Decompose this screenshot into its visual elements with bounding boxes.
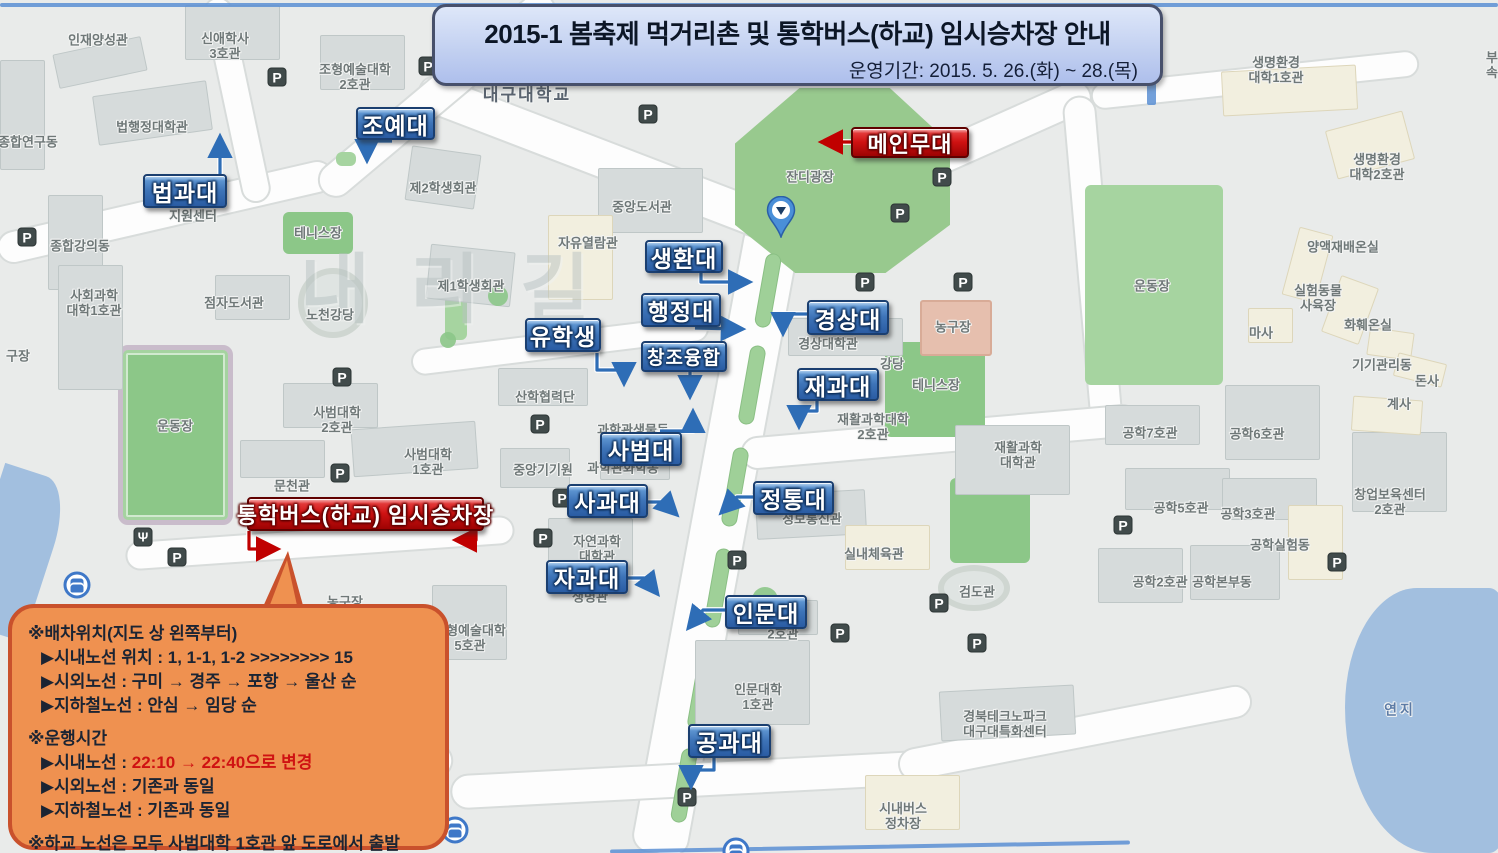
poster-title: 2015-1 봄축제 먹거리촌 및 통학버스(하교) 임시승차장 안내 — [451, 14, 1144, 51]
notice-line-highlight: 22:10 → 22:40으로 변경 — [132, 753, 313, 772]
notice-bubble: ※배차위치(지도 상 왼쪽부터)▶시내노선 위치 : 1, 1-1, 1-2 >… — [8, 604, 449, 850]
notice-line-prefix: ▶시내노선 : — [41, 753, 132, 772]
title-banner: 2015-1 봄축제 먹거리촌 및 통학버스(하교) 임시승차장 안내 운영기간… — [432, 4, 1163, 86]
notice-section: ※배차위치(지도 상 왼쪽부터)▶시내노선 위치 : 1, 1-1, 1-2 >… — [28, 622, 435, 718]
notice-line: ▶시내노선 위치 : 1, 1-1, 1-2 >>>>>>>> 15 — [28, 646, 435, 670]
notice-section-header: ※하교 노선은 모두 사범대학 1호관 앞 도로에서 출발 — [28, 832, 435, 853]
map-callout: 사과대 — [567, 484, 648, 518]
map-callout: 자과대 — [546, 560, 628, 594]
notice-bubble-content: ※배차위치(지도 상 왼쪽부터)▶시내노선 위치 : 1, 1-1, 1-2 >… — [28, 622, 435, 853]
map-callout: 조예대 — [356, 107, 435, 140]
map-callout: 공과대 — [688, 724, 771, 758]
map-callout: 정통대 — [753, 481, 834, 515]
map-callout: 창조융합 — [641, 341, 727, 372]
poster-subtitle: 운영기간: 2015. 5. 26.(화) ~ 28.(목) — [451, 56, 1144, 83]
notice-line: ▶지하철노선 : 안심 → 임당 순 — [28, 694, 435, 718]
notice-section: ※운행시간▶시내노선 : 22:10 → 22:40으로 변경▶시외노선 : 기… — [28, 727, 435, 823]
map-callout: 사범대 — [600, 432, 682, 466]
notice-section: ※하교 노선은 모두 사범대학 1호관 앞 도로에서 출발하며 통학버스에 부착… — [28, 832, 435, 853]
map-callout: 인문대 — [725, 595, 807, 629]
notice-section-header: ※배차위치(지도 상 왼쪽부터) — [28, 622, 435, 646]
notice-line: ▶지하철노선 : 기존과 동일 — [28, 799, 435, 823]
map-callout: 법과대 — [143, 174, 227, 208]
notice-section-header: ※운행시간 — [28, 727, 435, 751]
map-callout: 행정대 — [641, 293, 721, 327]
campus-map-poster: 내리길인재양성관신애학사 3호관조형예술대학 2호관대구대학교법행정대학관종합연… — [0, 0, 1498, 853]
map-callout: 메인무대 — [851, 127, 969, 158]
map-callout: 재과대 — [797, 368, 879, 401]
map-callout: 유학생 — [525, 318, 601, 352]
notice-line: ▶시외노선 : 구미 → 경주 → 포항 → 울산 순 — [28, 670, 435, 694]
notice-line: ▶시외노선 : 기존과 동일 — [28, 775, 435, 799]
map-callout: 경상대 — [807, 300, 889, 335]
map-callout: 생환대 — [645, 240, 723, 273]
map-callout: 통학버스(하교) 임시승차장 — [247, 497, 484, 531]
notice-line: ▶시내노선 : 22:10 → 22:40으로 변경 — [28, 751, 435, 775]
